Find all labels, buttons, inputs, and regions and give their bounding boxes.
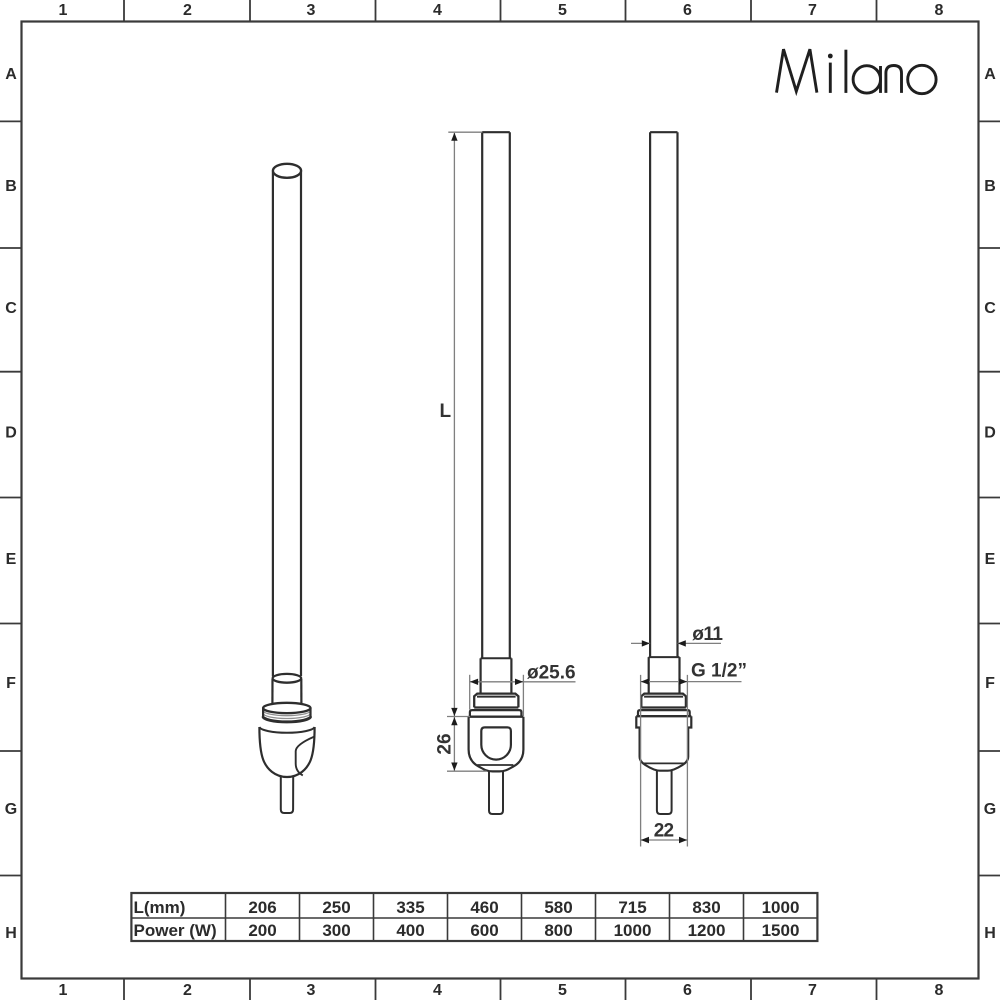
svg-text:L: L (440, 401, 452, 422)
svg-text:200: 200 (248, 921, 276, 940)
svg-text:1500: 1500 (762, 921, 800, 940)
svg-text:B: B (984, 178, 996, 195)
svg-text:D: D (5, 425, 17, 442)
svg-text:580: 580 (544, 898, 572, 917)
svg-text:G: G (5, 801, 17, 818)
svg-text:800: 800 (544, 921, 572, 940)
svg-text:1000: 1000 (614, 921, 652, 940)
svg-text:1200: 1200 (688, 921, 726, 940)
svg-text:300: 300 (322, 921, 350, 940)
svg-text:335: 335 (396, 898, 424, 917)
svg-text:A: A (5, 66, 17, 83)
svg-text:22: 22 (654, 821, 674, 842)
svg-text:1: 1 (59, 2, 68, 19)
svg-text:250: 250 (322, 898, 350, 917)
svg-text:26: 26 (435, 733, 456, 754)
svg-text:5: 5 (558, 2, 567, 19)
svg-text:A: A (984, 66, 996, 83)
svg-text:206: 206 (248, 898, 276, 917)
svg-text:H: H (5, 925, 17, 942)
svg-text:B: B (5, 178, 17, 195)
svg-text:8: 8 (935, 2, 944, 19)
svg-text:3: 3 (307, 2, 316, 19)
svg-text:G: G (984, 801, 996, 818)
svg-text:4: 4 (433, 2, 442, 19)
svg-text:Power (W): Power (W) (134, 921, 217, 940)
svg-text:ø25.6: ø25.6 (527, 663, 576, 684)
svg-text:400: 400 (396, 921, 424, 940)
svg-text:C: C (5, 300, 17, 317)
svg-text:4: 4 (433, 982, 442, 999)
svg-text:1: 1 (59, 982, 68, 999)
svg-text:715: 715 (618, 898, 646, 917)
svg-text:7: 7 (808, 2, 817, 19)
svg-text:H: H (984, 925, 996, 942)
svg-text:E: E (985, 551, 996, 568)
svg-text:6: 6 (683, 2, 692, 19)
svg-text:L(mm): L(mm) (134, 898, 186, 917)
svg-text:8: 8 (935, 982, 944, 999)
svg-text:E: E (6, 551, 17, 568)
svg-text:460: 460 (470, 898, 498, 917)
svg-text:D: D (984, 425, 996, 442)
svg-text:2: 2 (183, 982, 192, 999)
svg-text:1000: 1000 (762, 898, 800, 917)
svg-text:5: 5 (558, 982, 567, 999)
svg-text:F: F (985, 675, 995, 692)
svg-text:G 1/2”: G 1/2” (691, 661, 747, 682)
svg-text:600: 600 (470, 921, 498, 940)
svg-text:C: C (984, 300, 996, 317)
svg-text:7: 7 (808, 982, 817, 999)
svg-text:F: F (6, 675, 16, 692)
svg-text:6: 6 (683, 982, 692, 999)
svg-text:ø11: ø11 (692, 624, 723, 645)
svg-text:3: 3 (307, 982, 316, 999)
svg-text:830: 830 (692, 898, 720, 917)
svg-text:2: 2 (183, 2, 192, 19)
